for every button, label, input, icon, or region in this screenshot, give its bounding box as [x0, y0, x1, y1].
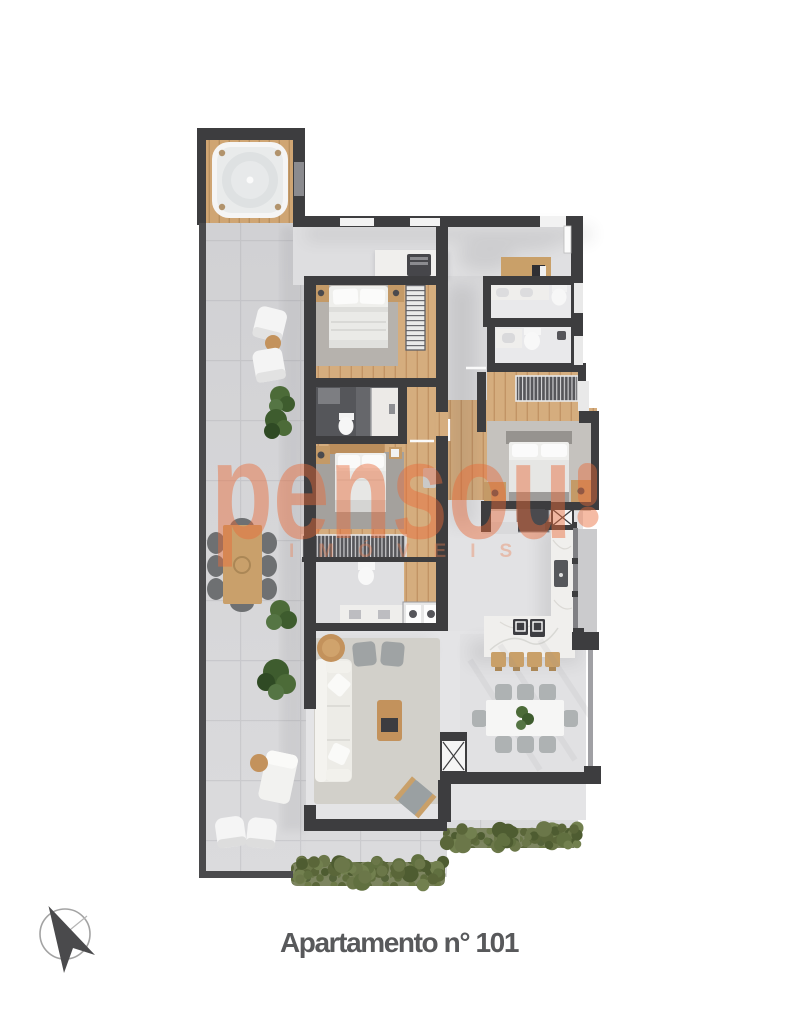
svg-text:IMÓVEIS: IMÓVEIS	[289, 540, 536, 562]
svg-text:Apartamento n° 101: Apartamento n° 101	[280, 927, 519, 958]
